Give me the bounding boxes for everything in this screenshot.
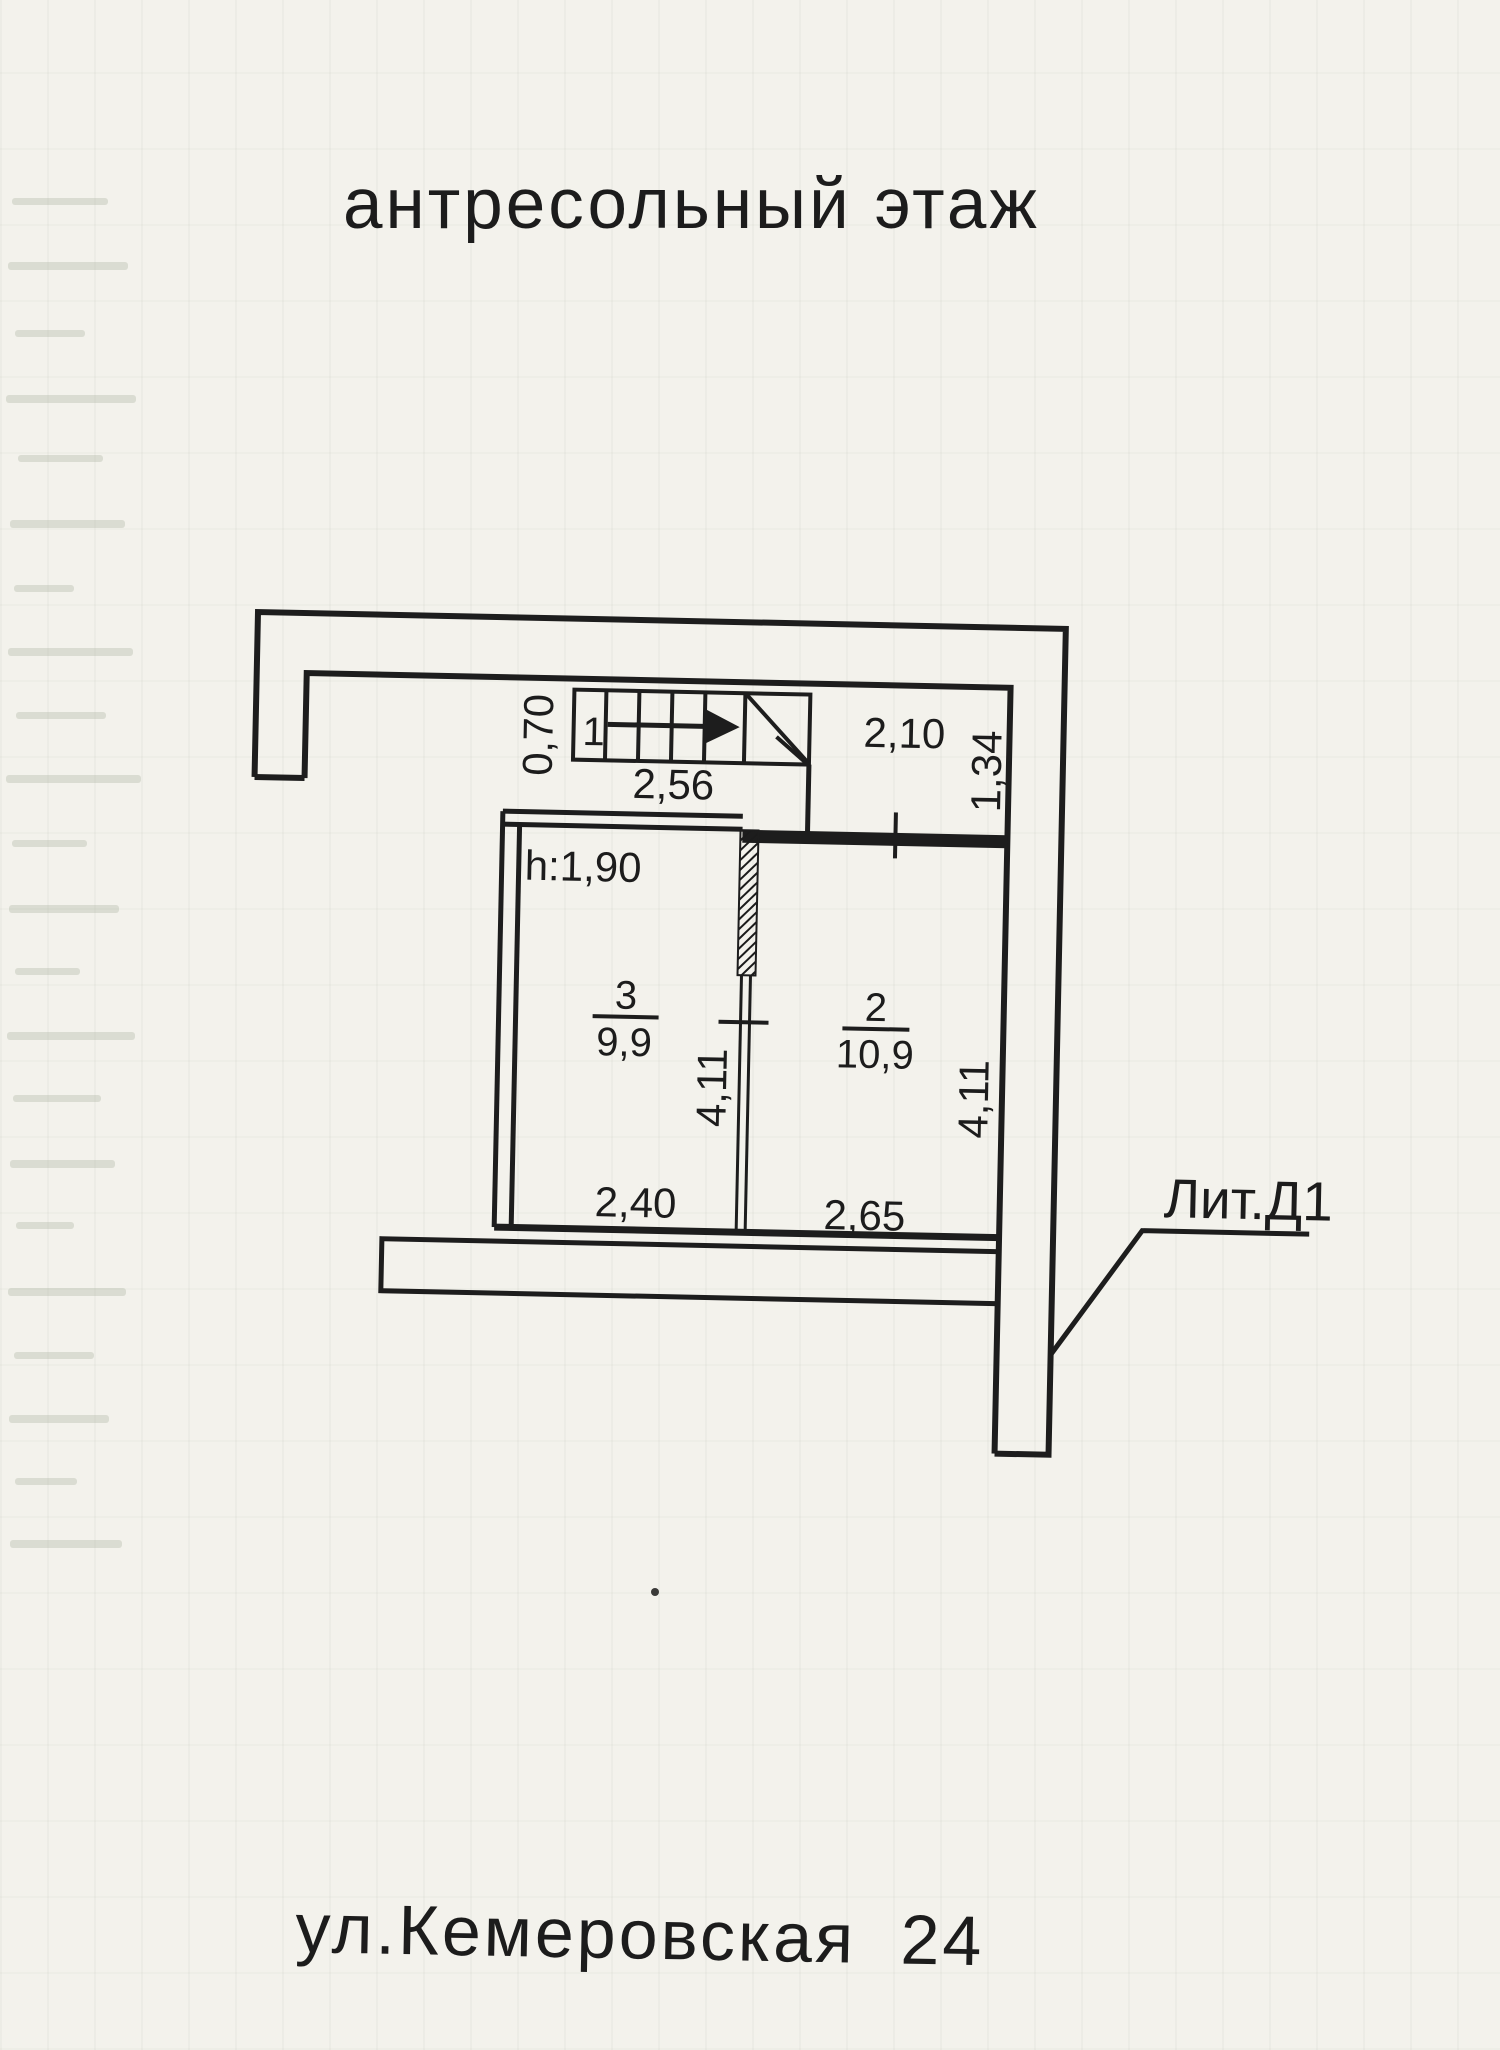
room3-top-wall-inner (503, 824, 743, 829)
room3-left-wall-outer (494, 811, 503, 1227)
partition-hatched-wall (738, 830, 759, 975)
porch-slab-band (381, 1239, 999, 1304)
dim-room3-width: 2,40 (594, 1178, 677, 1227)
room2-label: 2 10,9 (835, 985, 915, 1078)
dim-room2-width: 2,65 (823, 1191, 906, 1240)
room2-fraction-line (842, 1028, 909, 1029)
stair-break-lines (745, 694, 809, 764)
plan: 1 Лит.Д1 0,70 2,56 2,10 1,34 h:1,90 2,40… (241, 612, 1345, 1461)
dim-stair-length: 2,56 (632, 760, 715, 809)
room2-area: 10,9 (835, 1032, 914, 1078)
dim-landing-depth: 1,34 (962, 730, 1011, 813)
room2-top-wall (742, 836, 1007, 842)
building-label: Лит.Д1 (1163, 1167, 1333, 1233)
building-label-leader-line (1051, 1229, 1310, 1360)
left-wall-bottom-cap (255, 777, 305, 778)
scanned-floorplan-page: антресольный этаж 1 (0, 0, 1500, 2050)
dim-landing-width: 2,10 (863, 709, 946, 758)
room3-label: 3 9,9 (592, 973, 660, 1065)
ceiling-height-note: h:1,90 (524, 842, 642, 891)
room3-area: 9,9 (596, 1020, 653, 1065)
address-caption: ул.Кемеровская 24 (295, 1889, 985, 1980)
room3-number: 3 (614, 974, 637, 1018)
stair-number-label: 1 (582, 710, 605, 754)
floor-plan-drawing: антресольный этаж 1 (0, 0, 1500, 2050)
partition-dimension-tick (719, 1022, 769, 1023)
room3-left-wall-inner (511, 825, 519, 1228)
scan-artifacts (6, 198, 141, 1548)
landing-divider-line (807, 765, 808, 834)
dim-stair-width: 0,70 (514, 694, 563, 777)
ink-dot-artifact (651, 1588, 659, 1596)
dim-room2-depth: 4,11 (949, 1059, 998, 1139)
partition-thin-line-right (745, 975, 750, 1232)
room3-top-wall-outer (503, 811, 743, 816)
page-title: антресольный этаж (343, 165, 1040, 244)
dim-room3-depth: 4,11 (687, 1048, 736, 1128)
room2-number: 2 (864, 986, 887, 1030)
room3-fraction-line (593, 1016, 659, 1017)
partition-thin-line-left (736, 975, 741, 1232)
